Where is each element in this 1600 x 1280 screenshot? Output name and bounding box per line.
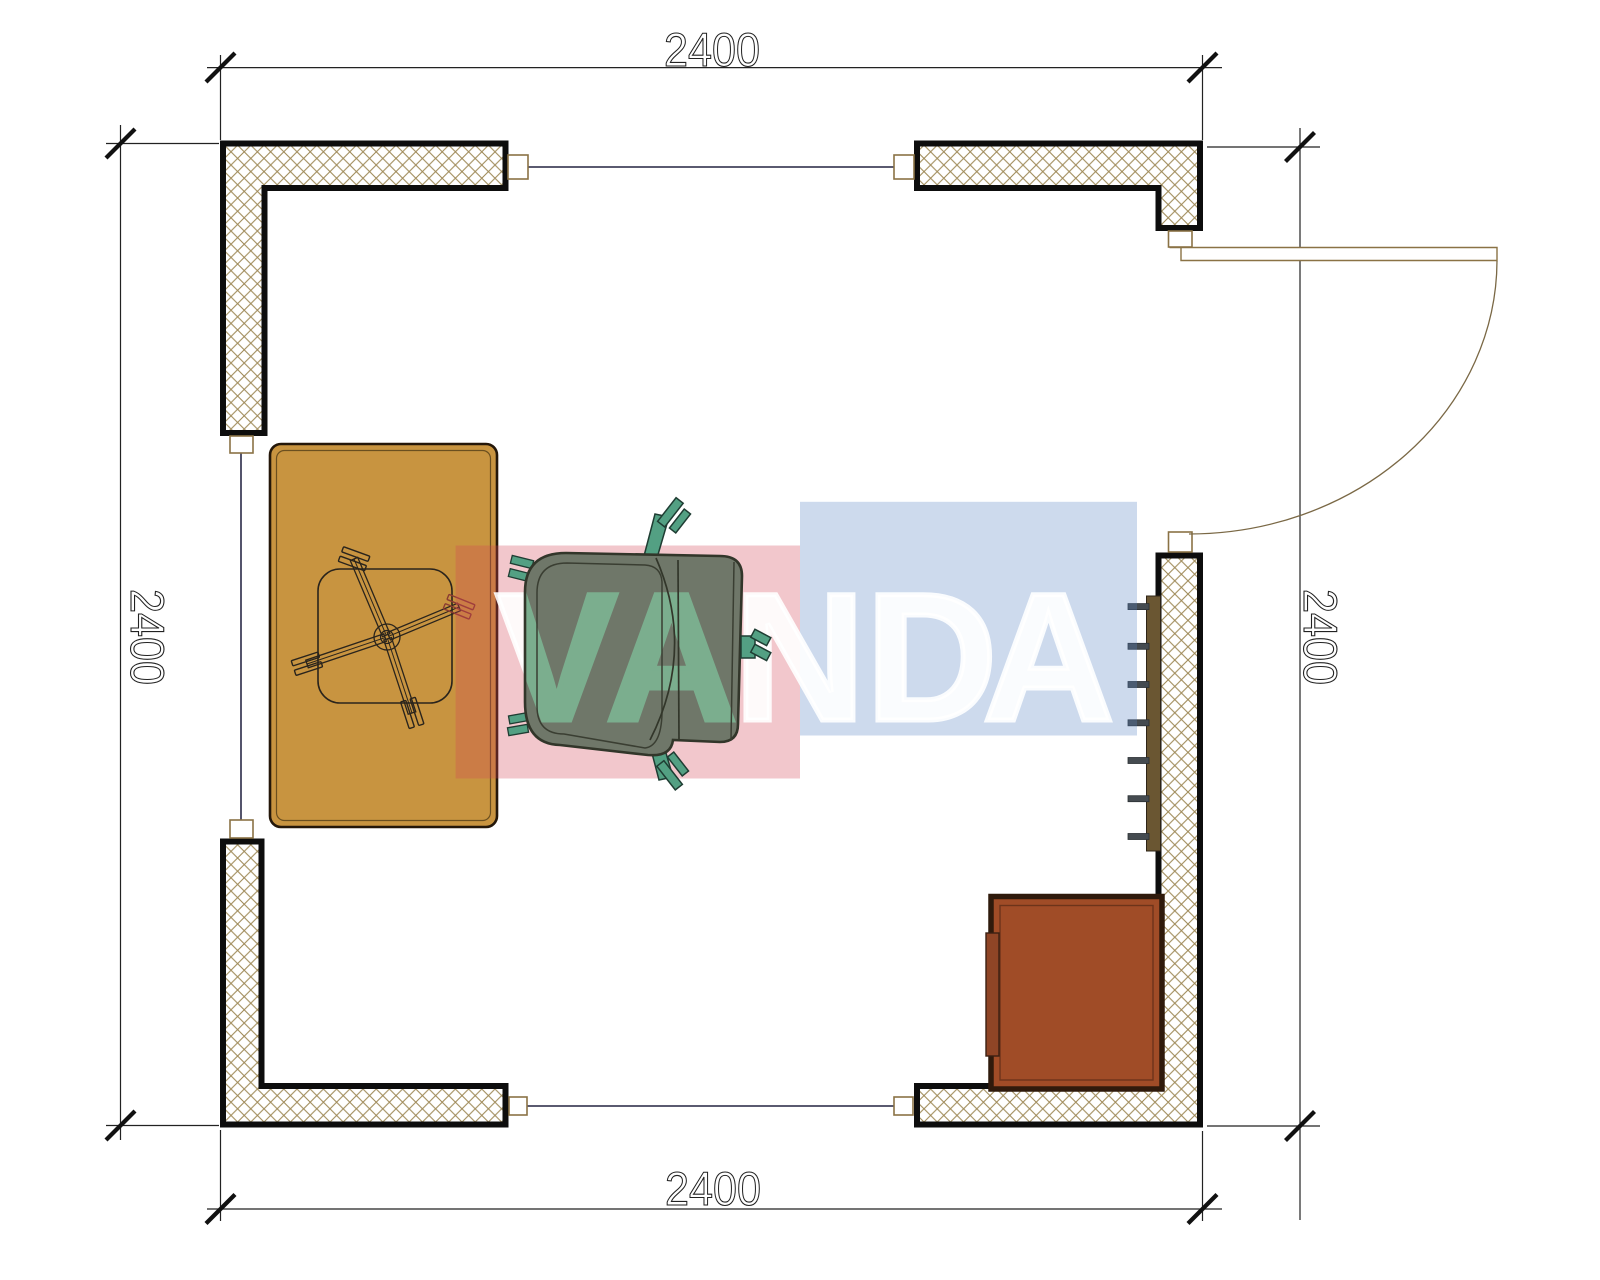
svg-text:2400: 2400 (664, 23, 760, 76)
svg-text:D: D (866, 555, 997, 759)
svg-text:2400: 2400 (665, 1162, 761, 1215)
svg-text:2400: 2400 (1294, 589, 1347, 685)
svg-text:A: A (606, 555, 737, 759)
svg-text:2400: 2400 (121, 589, 174, 685)
svg-text:A: A (983, 555, 1114, 759)
